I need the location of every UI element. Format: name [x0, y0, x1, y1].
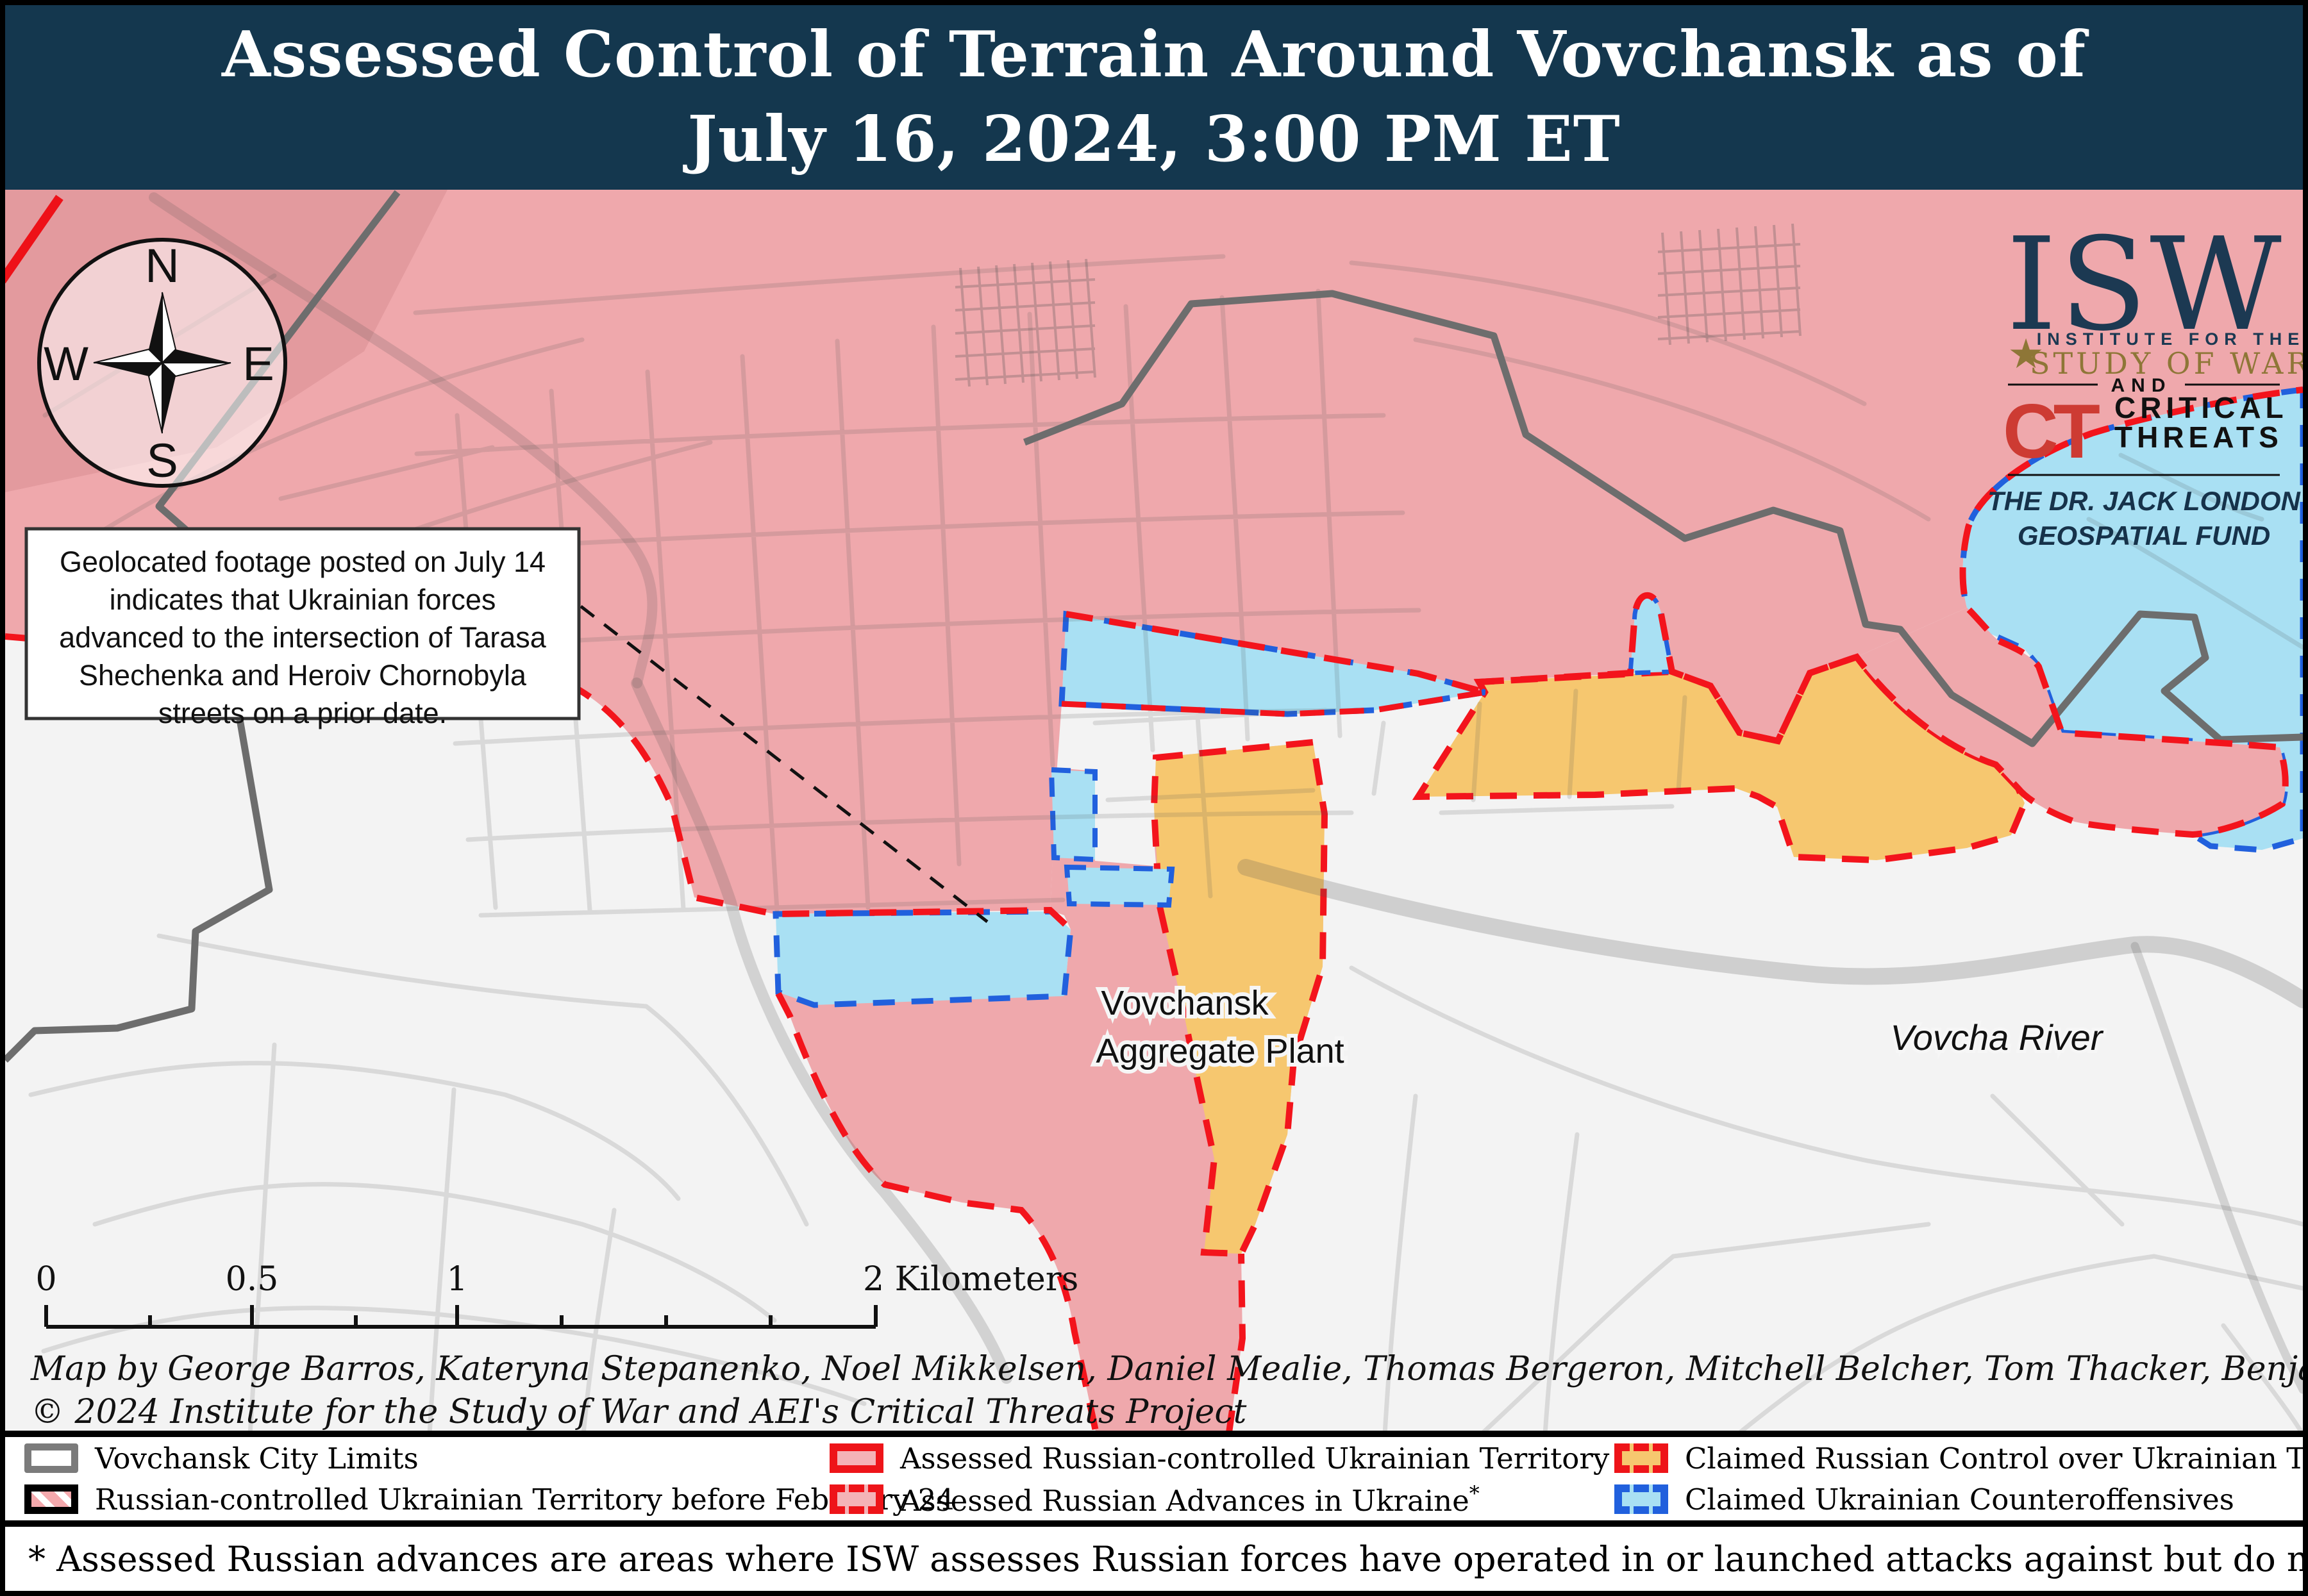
legend-label: Claimed Russian Control over Ukrainian T… [1685, 1442, 2308, 1475]
legend-label: Vovchansk City Limits [95, 1442, 419, 1475]
legend-label: Claimed Ukrainian Counteroffensives [1685, 1483, 2234, 1517]
callout-line: Shechenka and Heroiv Chornobyla [79, 659, 527, 692]
credits-line2: © 2024 Institute for the Study of War an… [31, 1393, 1247, 1431]
page-title-line1: Assessed Control of Terrain Around Vovch… [222, 13, 2086, 97]
footnote-top-rule [5, 1520, 2303, 1527]
title-bar: Assessed Control of Terrain Around Vovch… [5, 5, 2303, 190]
critical-text: CRITICAL [2114, 391, 2288, 424]
legend-item-assessed-control: Assessed Russian-controlled Ukrainian Te… [830, 1440, 1609, 1477]
fund-line1: THE DR. JACK LONDON [1987, 486, 2301, 516]
isw-map-page: N E S W Geolocated footage posted on Jul… [0, 0, 2308, 1596]
compass-s: S [146, 434, 178, 487]
claimed-ukrainian-rect [776, 911, 1071, 1005]
credits-line1: Map by George Barros, Kateryna Stepanenk… [30, 1350, 2303, 1388]
page-title-line2: July 16, 2024, 3:00 PM ET [687, 97, 1620, 182]
callout-line: streets on a prior date. [158, 697, 447, 729]
ct-logo: CT [2003, 388, 2100, 474]
label-vovcha-river: Vovcha River [1891, 1017, 2104, 1058]
compass-e: E [242, 337, 274, 390]
legend-label: Assessed Russian Advances in Ukraine* [900, 1481, 1480, 1518]
isw-logo: ISW ★ INSTITUTE FOR THE STUDY OF WAR AND… [1987, 210, 2303, 551]
label-aggregate-plant-2: Aggregate Plant [1096, 1032, 1344, 1070]
callout-line: advanced to the intersection of Tarasa [59, 621, 547, 654]
scale-1: 1 [446, 1260, 467, 1299]
legend-label: Assessed Russian-controlled Ukrainian Te… [900, 1442, 1609, 1475]
compass-w: W [44, 337, 88, 390]
claimed-ukrainian-swatch [1614, 1484, 1668, 1514]
advances-swatch [830, 1484, 883, 1514]
annotation-callout: Geolocated footage posted on July 14 ind… [26, 529, 579, 729]
callout-line: indicates that Ukrainian forces [110, 583, 496, 616]
callout-line: Geolocated footage posted on July 14 [60, 545, 546, 578]
footnote-text: * Assessed Russian advances are areas wh… [28, 1539, 2308, 1579]
scale-0: 0 [35, 1260, 56, 1299]
legend-item-claimed-russian: Claimed Russian Control over Ukrainian T… [1614, 1440, 2308, 1477]
legend-item-claimed-ukrainian: Claimed Ukrainian Counteroffensives [1614, 1481, 2234, 1518]
label-aggregate-plant-1: Vovchansk [1101, 984, 1269, 1022]
fund-line2: GEOSPATIAL FUND [2018, 520, 2270, 551]
compass-rose: N E S W [39, 239, 285, 487]
compass-n: N [145, 239, 179, 292]
pre-feb24-swatch [24, 1484, 78, 1514]
map-canvas: N E S W Geolocated footage posted on Jul… [5, 5, 2303, 1591]
scale-05: 0.5 [226, 1260, 279, 1299]
legend: Vovchansk City Limits Russian-controlled… [5, 1437, 2303, 1520]
legend-item-city-limits: Vovchansk City Limits [24, 1440, 419, 1477]
scale-2km: 2 Kilometers [863, 1260, 1078, 1299]
legend-item-pre-feb24: Russian-controlled Ukrainian Territory b… [24, 1481, 955, 1518]
assessed-control-swatch [830, 1443, 883, 1473]
legend-label: Russian-controlled Ukrainian Territory b… [95, 1483, 955, 1517]
legend-top-rule [5, 1431, 2303, 1437]
threats-text: THREATS [2114, 420, 2283, 454]
legend-item-advances: Assessed Russian Advances in Ukraine* [830, 1481, 1480, 1518]
city-limits-swatch [24, 1443, 78, 1473]
footnote-band: * Assessed Russian advances are areas wh… [5, 1527, 2303, 1591]
claimed-ukrainian-pocket [1067, 867, 1172, 905]
claimed-russian-swatch [1614, 1443, 1668, 1473]
